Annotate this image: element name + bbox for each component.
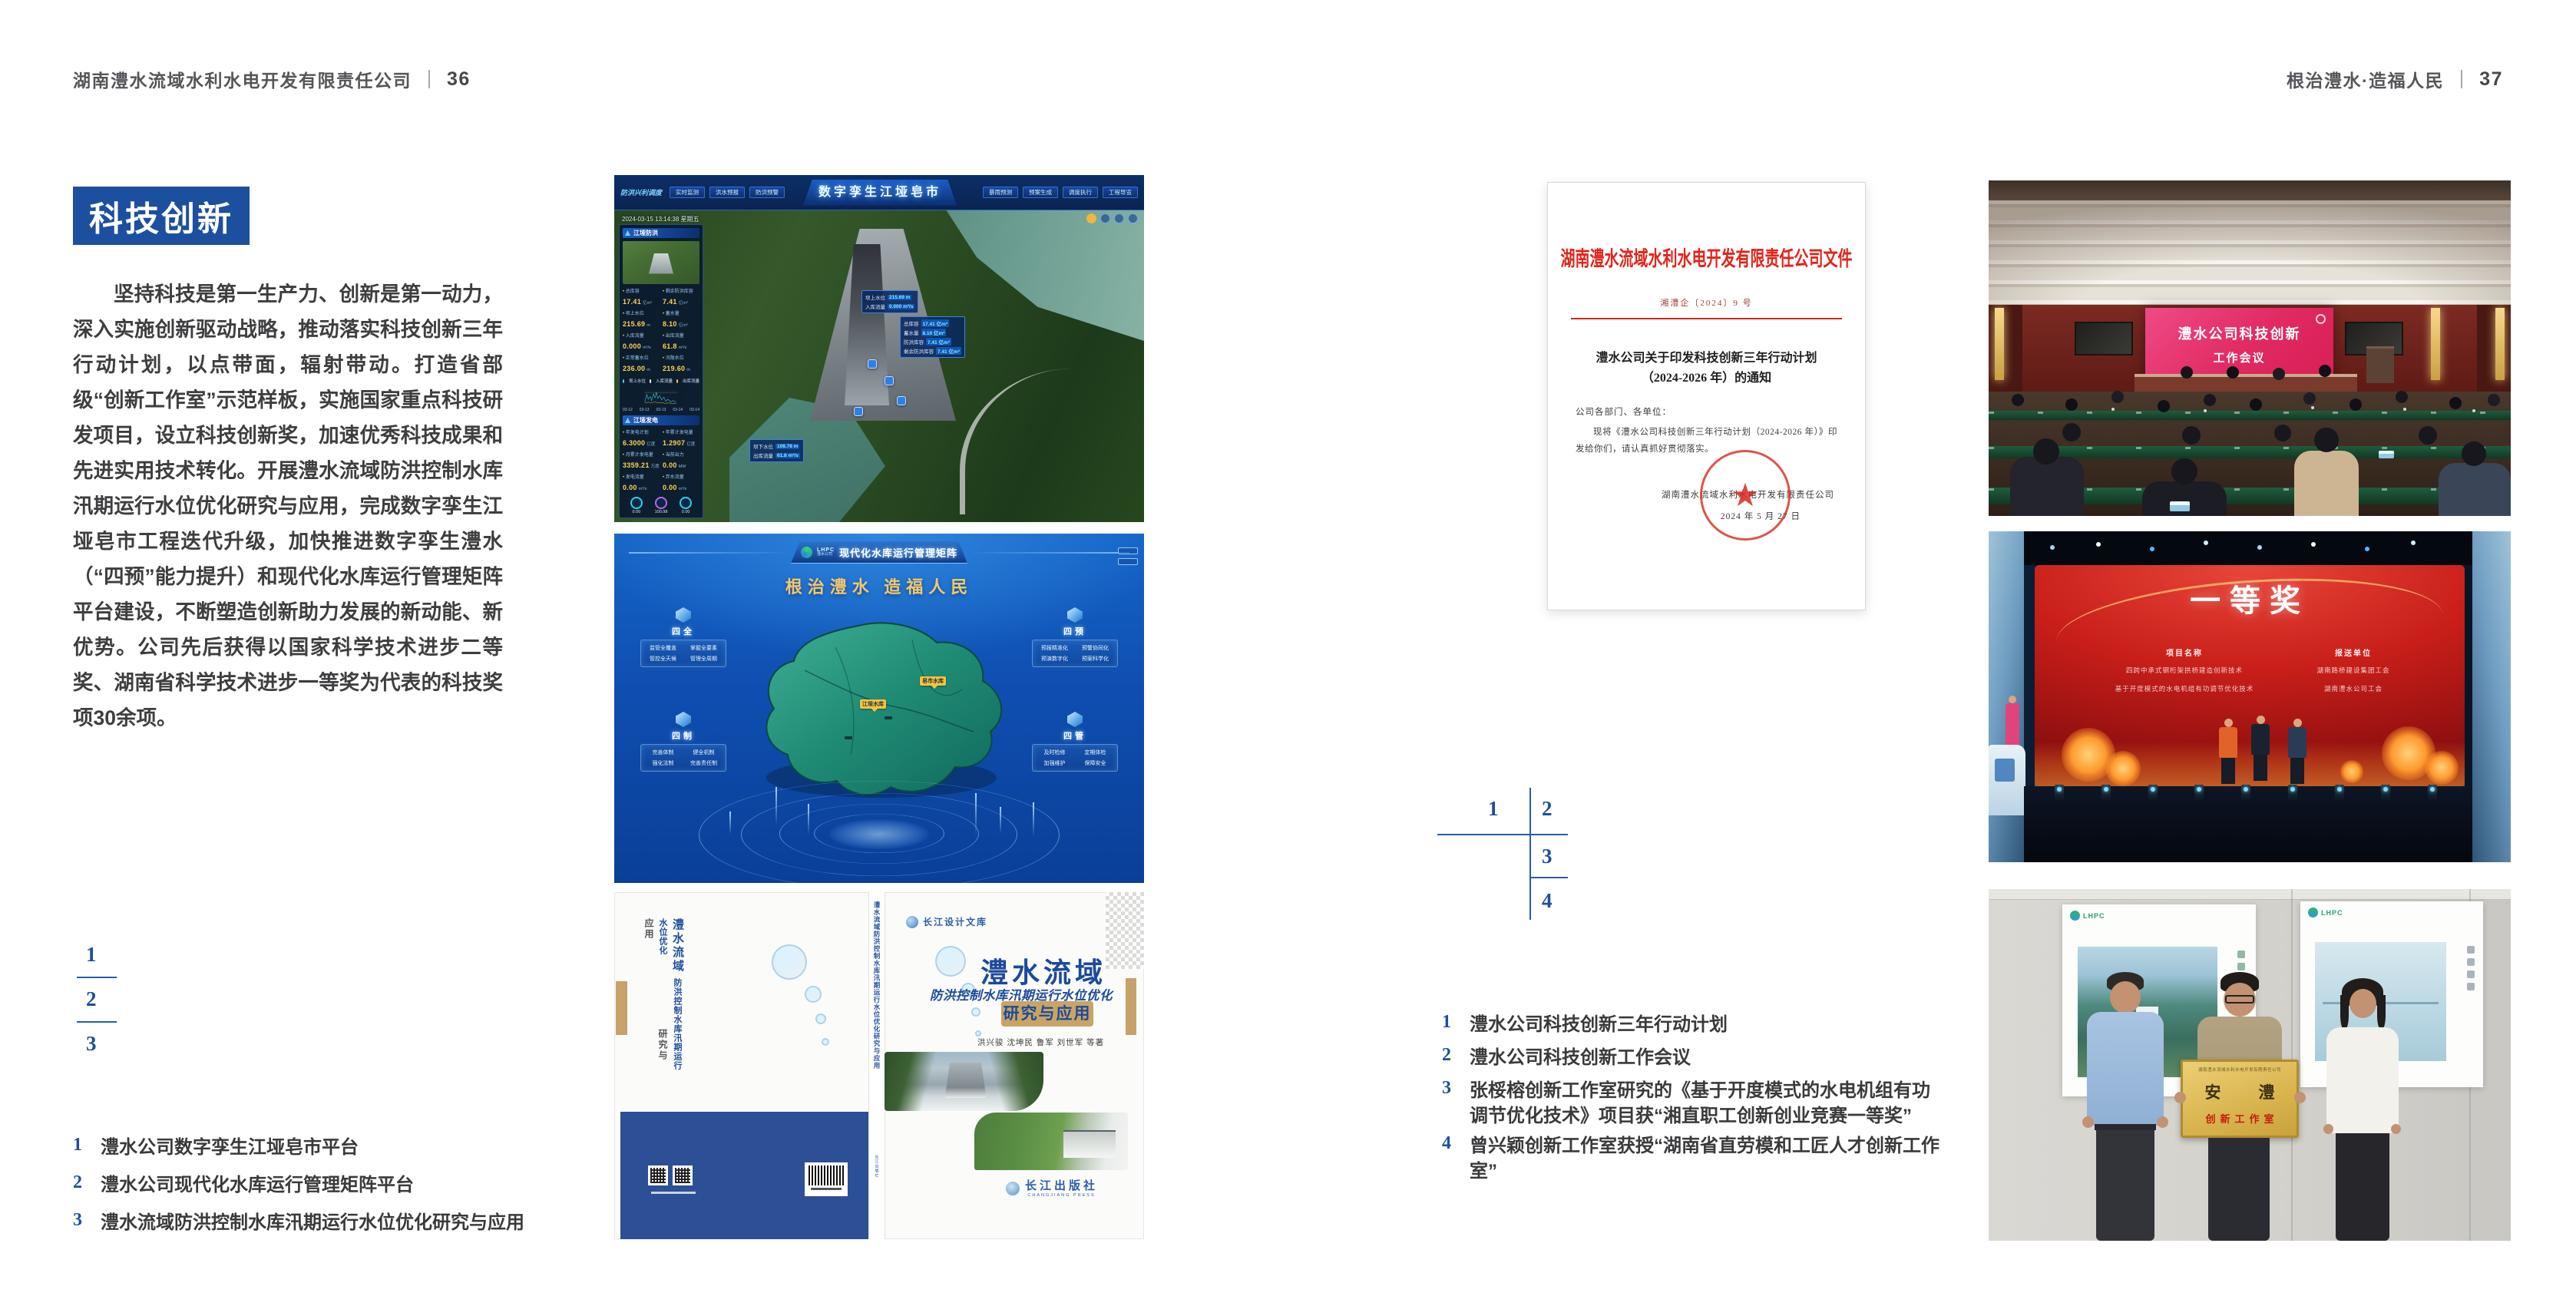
tab-dispatch-execution: 调度执行 [1063,187,1098,198]
ceiling-lights [1989,200,2511,305]
cover-hillside-photo [974,1113,1128,1170]
chart-legend: 坝上水位 入库流量 出库流量 [623,378,699,384]
stat-unit: m³/s [679,487,687,491]
tip-value: 0.000 m³/s [888,304,914,309]
header-divider [2461,70,2462,88]
right-page-header: 根治澧水·造福人民 37 [2287,66,2503,92]
tip-label: 防洪库容 [904,338,924,346]
figure-number-divider [77,1021,117,1023]
radar-ring [699,781,1060,883]
panel-item: 健全机制 [684,749,723,756]
stat-unit: m³/s [643,346,651,350]
tooltip-downstream-level: 坝下水位108.78 m 出库流量61.8 m³/s [749,439,804,462]
stat-label: 出库流量 [663,332,699,339]
bubble-decoration [971,1007,980,1017]
lhpc-logo-icon [801,547,812,558]
stat-unit: MW [679,465,686,469]
host-figure [2004,696,2021,748]
publisher-logo-icon [1006,1182,1020,1195]
cover-dam-photo [885,1052,1043,1111]
logo-text: LHPC [2083,912,2105,920]
publisher-name-en: CHANGJIANG PRESS [1027,1193,1095,1199]
screen-title-line1: 澧水公司科技创新 [2145,323,2333,343]
panel-item: 掌握全要素 [684,644,723,652]
stat-label: 年累计发电量 [663,428,699,435]
presentation-screen: 澧水公司科技创新 工作会议 [2145,308,2333,382]
front-cover-tan-block [1126,978,1136,1035]
dashboard-top-bar: 防洪兴利调度 实时监测 洪水预报 防洪预警 数字孪生江垭皂市 暴雨预测 预案生成… [614,175,1144,210]
column-row: 湖南路桥建设集团工会 [2288,666,2419,675]
caption-right-4: 4 曾兴颖创新工作室获授“湖南省直劳模和工匠人才创新工作室” [1442,1133,1961,1184]
caption-number: 3 [73,1210,87,1231]
audience-head [2182,426,2201,445]
column-header: 报送单位 [2288,646,2419,658]
gauge-icon [630,497,643,509]
light-pillar [1033,802,1034,837]
bubble-decoration [805,986,822,1003]
bubble-decoration [772,944,807,980]
panel-item: 管控全天候 [643,655,683,663]
series-logo-icon [906,916,918,928]
document-salutation: 公司各部门、各单位： [1576,405,1672,418]
x-tick: 03-12 [623,408,633,412]
panel-title: 四预 [1063,625,1086,637]
person-center-man: 湖南澧水流域水利水电开发有限责任公司 安 澧 创新工作室 [2190,969,2290,1241]
publisher-block: 长江出版社 CHANGJIANG PRESS [964,1179,1140,1199]
stat-value: 215.69 [623,320,645,328]
document-red-header: 湖南澧水流域水利水电开发有限责任公司文件 [1548,243,1865,273]
map-pin-icon [868,359,877,369]
document-title-line2: （2024-2026 年）的通知 [1548,367,1865,385]
bubble-decoration [975,1030,981,1037]
logo-text: LHPC [2321,909,2343,917]
ceiling-beam [1989,180,2511,200]
x-tick: 03-14 [673,408,683,412]
access-road [960,369,1121,514]
tab-flood-warning: 防洪预警 [749,187,785,198]
caption-text: 澧水流域防洪控制水库汛期运行水位优化研究与应用 [101,1210,524,1235]
stage-truss [2024,531,2472,565]
light-pillar [1000,807,1001,834]
tab-rain-forecast: 暴雨预测 [983,187,1018,198]
presenter-suit [2251,716,2270,781]
locate-icon [1114,213,1124,223]
dashboard-datetime: 2024-03-15 13:14:38 星期五 [622,215,699,223]
water-bottles [2111,408,2115,411]
water-level-chart [623,387,699,405]
figure-number-divider [77,977,117,978]
figure-number-4: 4 [1542,889,1553,913]
legend-item: 出库流量 [683,378,699,384]
back-cover-title: 澧水流域 防洪控制水库汛期运行水位优化 研究与应用 [642,918,686,1072]
caption-number: 2 [73,1172,87,1193]
turbine-gauges: 0.00 100.98 0.00 [623,497,699,514]
wall-column [1989,305,2022,392]
caption-left-1: 1 澧水公司数字孪生江垭皂市平台 [73,1135,359,1160]
audience-table-row [1989,411,2511,420]
spotlights [2050,545,2055,550]
bubble-decoration [822,1038,829,1046]
bubble-decoration [815,1013,826,1024]
host-podium [1989,745,2025,815]
stat-unit: 亿度 [686,442,695,447]
gold-light-pillar [1995,308,2004,380]
legend-item: 坝上水位 [629,378,646,384]
figure-digital-twin-dashboard: 防洪兴利调度 实时监测 洪水预报 防洪预警 数字孪生江垭皂市 暴雨预测 预案生成… [614,175,1144,522]
tip-value: 17.41 亿m³ [921,319,950,327]
map-pin-icon [854,407,863,416]
stat-label: 弃水流量 [663,473,699,480]
x-tick: 03-13 [656,408,666,412]
stat-value: 0.00 [623,484,637,491]
light-pillar [808,804,809,835]
header-wing [968,552,1129,554]
lhpc-logo-icon [2070,911,2080,921]
audience-figure-beige [2294,451,2359,516]
back-cover-tan-block [616,981,627,1035]
stat-value: 219.60 [663,365,685,372]
figure-number-1: 1 [86,943,97,967]
caption-text: 澧水公司数字孪生江垭皂市平台 [101,1135,359,1160]
panel-title: 四全 [672,625,695,637]
caption-number: 2 [1442,1045,1456,1066]
stat-unit: 亿度 [646,442,655,447]
award-headline: 一等奖 [1989,576,2511,620]
magazine-spread: 湖南澧水流域水利水电开发有限责任公司 36 根治澧水·造福人民 37 科技创新 … [0,0,2576,1306]
dashboard-left-panel: 江垭防洪 总库容17.41亿m³ 剩余防洪库容7.41亿m³ 坝上水位215.6… [619,224,703,518]
panel-item: 预演数字化 [1035,655,1074,663]
tooltip-storage: 总库容17.41 亿m³ 蓄水量8.10 亿m³ 防洪库容7.41 亿m³ 剩余… [900,316,965,358]
light-pillar [775,787,777,825]
tip-label: 坝下水位 [753,442,773,450]
person-left-man [2079,966,2171,1241]
gold-light-pillar [2431,308,2440,380]
audience-figure-blue [2439,463,2511,516]
stat-label: 剩余防洪库容 [663,287,699,294]
caption-right-3: 3 张桵榕创新工作室研究的《基于开度模式的水电机组有功调节优化技术》项目获“湘直… [1442,1078,1946,1129]
awardee-navy [2288,719,2306,784]
tip-value: 61.8 m³/s [775,453,800,458]
map-pin-icon [897,396,906,405]
series-name: 长江设计文库 [923,915,987,928]
right-header-text: 根治澧水·造福人民 [2287,66,2444,92]
caption-text: 曾兴颖创新工作室获授“湖南省直劳模和工匠人才创新工作室” [1470,1133,1961,1184]
tip-label: 剩余防洪库容 [904,347,934,355]
caption-number: 1 [73,1135,87,1156]
tip-label: 入库流量 [865,303,885,310]
figure-group-photo: LHPC LHPC 湖南澧水流域水利水电开发有限责任公司 安 澧 [1989,889,2511,1241]
award-org-column: 报送单位 湖南路桥建设集团工会 湖南澧水公司工会 [2288,646,2419,703]
audience-head [2062,423,2081,441]
document-red-rule [1571,318,1842,319]
tip-label: 蓄水量 [904,329,919,336]
gauge-icon [655,497,667,509]
cover-authors: 洪兴骏 沈坤民 鲁军 刘世军 等著 [974,1037,1108,1048]
checker-decoration [1106,892,1144,969]
caption-left-2: 2 澧水公司现代化水库运行管理矩阵平台 [73,1172,414,1198]
tissue-box [2379,451,2394,458]
audience-head [2419,426,2437,445]
caption-text: 张桵榕创新工作室研究的《基于开度模式的水电机组有功调节优化技术》项目获“湘直职工… [1470,1078,1946,1129]
awardee-orange [2219,719,2237,784]
panel-item: 及时检修 [1035,749,1074,756]
plaque-header: 湖南澧水流域水利水电开发有限责任公司 [2183,1066,2297,1073]
isbn-barcode [805,1162,848,1196]
spine-publisher: 长江出版社 [875,1155,880,1178]
gauge-icon [680,497,692,509]
book-spine: 澧水流域防洪控制水库汛期运行水位优化研究与应用 长江出版社 [868,892,885,1239]
figure-official-document: 湖南澧水流域水利水电开发有限责任公司文件 湘澧企〔2024〕9 号 澧水公司关于… [1547,182,1866,610]
audience-head [2033,438,2059,465]
moving-head-lights [2055,785,2437,800]
stat-label: 坝上水位 [623,309,660,316]
stage-orb-light [2105,751,2141,786]
figure-matrix-platform: LHPC 澧水公司 现代化水库运行管理矩阵 根治澧水 造福人民 皂市水库 江垭水… [614,534,1144,883]
stage-orb-light [2340,760,2363,783]
monitor-icon [1067,712,1083,727]
audience-head [2171,458,2197,484]
audience-head [2462,441,2486,466]
wall-top-strip [1989,889,2511,900]
stat-unit: 亿m³ [679,301,688,306]
tip-value: 7.41 亿m³ [936,347,961,355]
right-page-number: 37 [2479,68,2503,91]
caption-left-3: 3 澧水流域防洪控制水库汛期运行水位优化研究与应用 [73,1210,524,1235]
cube-icon [1067,607,1083,623]
lhpc-logo-icon [2308,908,2318,918]
caption-text: 澧水公司现代化水库运行管理矩阵平台 [101,1172,414,1198]
stat-label: 正常蓄水位 [623,354,660,361]
innovation-studio-plaque: 湖南澧水流域水利水电开发有限责任公司 安 澧 创新工作室 [2181,1060,2299,1138]
document-title-line1: 澧水公司关于印发科技创新三年行动计划 [1548,347,1865,365]
panel-item: 预警协同化 [1076,644,1115,652]
column-row: 四跨中承式钢桁架拱桥建造创新技术 [2104,666,2265,675]
gauge-value: 0.00 [630,510,643,514]
tab-realtime-monitor: 实时监测 [670,187,705,198]
body-paragraph: 坚持科技是第一生产力、创新是第一动力，深入实施创新驱动战略，推动落实科技创新三年… [73,276,503,736]
stat-unit: 亿m³ [679,323,688,328]
flood-stats: 总库容17.41亿m³ 剩余防洪库容7.41亿m³ 坝上水位215.69m 蓄水… [623,287,699,375]
figure-number-2: 2 [1542,797,1553,821]
column-row: 基于开度模式的水电机组有功调节优化技术 [2104,684,2265,693]
back-title-region: 澧水流域 [671,918,684,974]
figure-grid-vline [1529,788,1531,920]
matrix-slogan: 根治澧水 造福人民 [785,574,974,598]
stat-unit: m³/s [639,487,647,491]
audience-heads-row1 [2012,394,2024,406]
stage-orb-light [2425,751,2459,785]
stat-label: 当前出力 [663,451,699,458]
stat-label: 汛限水位 [663,354,699,361]
stat-unit: m [646,323,650,328]
panel-item: 完善责任制 [684,759,723,767]
poster-logo: LHPC [2070,911,2105,921]
stat-unit: m [646,368,650,372]
stat-value: 1.2907 [663,439,685,447]
cover-title-tail: 研究与应用 [1001,1001,1093,1027]
plaque-title: 安 澧 [2183,1080,2297,1103]
stat-value: 0.00 [663,461,677,469]
header-button [1118,547,1138,554]
panel-item: 预报精准化 [1035,644,1074,652]
stat-value: 61.8 [663,342,677,350]
gauge-value: 0.00 [680,510,692,514]
official-seal [1700,450,1791,541]
figure-number-1: 1 [1488,797,1499,821]
power-panel-title: 江垭发电 [623,415,699,425]
panel-siquan: 四全 监管全覆盖 掌握全要素 管控全天候 管理全周期 [640,607,726,667]
small-station-marker [845,736,852,739]
stat-value: 17.41 [623,298,641,306]
left-header-text: 湖南澧水流域水利水电开发有限责任公司 [73,66,412,92]
award-project-column: 项目名称 四跨中承式钢桁架拱桥建造创新技术 基于开度模式的水电机组有功调节优化技… [2104,646,2265,703]
figure-number-3: 3 [86,1032,97,1056]
marker-zaoshi-reservoir: 皂市水库 [920,676,946,686]
tip-value: 7.41 亿m³ [926,338,951,346]
screen-title-line2: 工作会议 [2145,349,2333,365]
small-station-marker [885,716,892,719]
qr-code [673,1165,693,1185]
tooltip-upstream-level: 坝上水位215.69 m 入库流量0.000 m³/s [861,290,918,313]
stat-label: 月累计发电量 [623,451,660,458]
tab-plan-generation: 预案生成 [1023,187,1058,198]
poster-calligraphy [2459,946,2482,1057]
dam-thumbnail-photo [623,241,699,284]
caption-text: 澧水公司科技创新工作会议 [1470,1045,1691,1070]
dashboard-corner-label: 防洪兴利调度 [620,187,662,197]
caption-number: 3 [1442,1078,1456,1099]
tip-value: 215.69 m [888,295,911,300]
stat-value: 3359.21 [623,461,650,469]
layers-icon [1100,213,1110,223]
left-page-header: 湖南澧水流域水利水电开发有限责任公司 36 [73,66,471,92]
lectern [2366,346,2394,383]
figure-meeting-photo: 澧水公司科技创新 工作会议 [1989,180,2511,516]
stat-value: 236.00 [623,365,645,372]
wall-column [2477,305,2511,392]
matrix-header: LHPC 澧水公司 现代化水库运行管理矩阵 [791,541,967,564]
publisher-name: 长江出版社 [1025,1179,1098,1193]
dashboard-toolbar-icons [1086,213,1138,223]
map-pin-icon [885,376,894,385]
x-tick: 03-14 [689,408,699,412]
document-number: 湘澧企〔2024〕9 号 [1548,296,1865,309]
chart-x-ticks: 03-12 03-13 03-13 03-14 03-14 [623,408,699,412]
tissue-box [2170,501,2190,511]
stat-unit: m³/s [679,346,687,350]
stat-value: 6.3000 [623,439,645,447]
figure-number-3: 3 [1542,845,1553,868]
stat-value: 8.10 [663,320,677,328]
tip-label: 总库容 [904,319,919,327]
stat-value: 0.000 [623,342,641,350]
poster-logo: LHPC [2308,908,2343,918]
audience-figure [2010,457,2084,516]
panel-item: 管理全周期 [684,655,723,663]
stat-unit: m [686,368,690,372]
dashboard-title: 数字孪生江垭皂市 [803,180,957,206]
panel-title: 四管 [1063,729,1086,742]
panel-item: 监管全覆盖 [643,644,683,652]
tip-value: 8.10 亿m³ [921,329,947,336]
audience-head [2274,425,2291,441]
section-title: 科技创新 [73,187,250,245]
tab-project-tour: 工程导览 [1103,187,1138,198]
stat-label: 入库流量 [623,332,660,339]
light-pillar [975,793,977,835]
qr-caption-line [651,1192,696,1194]
stat-unit: 亿m³ [643,301,652,306]
gauge-value: 100.98 [655,510,668,514]
legend-item: 入库流量 [656,378,673,384]
stat-unit: 万度 [651,465,660,469]
panel-item: 保障安全 [1076,759,1115,767]
stat-value: 0.00 [663,484,677,491]
panel-siguan: 四管 及时检修 定期体检 加强维护 保障安全 [1032,712,1118,772]
left-page-number: 36 [447,68,471,91]
caption-right-2: 2 澧水公司科技创新工作会议 [1442,1045,1691,1070]
cube-icon [676,607,691,623]
figure-grid-hline [1529,877,1568,878]
panel-item: 完善体制 [643,749,683,756]
tip-value: 108.78 m [775,444,799,449]
building-icon [676,712,691,727]
power-stats: 年发电计划6.3000亿度 年累计发电量1.2907亿度 月累计发电量3359.… [623,428,699,494]
user-icon [1086,213,1096,223]
panel-sizhi: 四制 完善体制 健全机制 强化法制 完善责任制 [640,712,726,772]
qr-code [648,1165,668,1185]
spine-title: 澧水流域防洪控制水库汛期运行水位优化研究与应用 [872,901,881,1124]
caption-right-1: 1 澧水公司科技创新三年行动计划 [1442,1012,1728,1037]
panel-item: 预案科学化 [1076,655,1115,663]
figure-number-2: 2 [86,987,97,1011]
marker-jiangya-reservoir: 江垭水库 [860,699,886,709]
head-table-people [2181,366,2193,379]
panel-title: 四制 [672,729,695,742]
settings-icon [1128,213,1138,223]
stat-label: 总库容 [623,287,660,294]
series-logo-row: 长江设计文库 [906,915,987,928]
figure-book-cover: 澧水流域 防洪控制水库汛期运行水位优化 研究与应用 澧水流域防洪控制水库汛期运行… [614,892,1144,1239]
column-header: 项目名称 [2104,646,2265,658]
watershed-terrain-map [743,617,1020,805]
matrix-title: 现代化水库运行管理矩阵 [839,545,957,560]
caption-number: 4 [1442,1133,1456,1154]
document-body: 现将《澧水公司科技创新三年行动计划（2024-2026 年）》印发给你们，请认真… [1576,424,1837,458]
header-button [1118,558,1138,565]
tab-flood-forecast: 洪水预报 [709,187,745,198]
stat-label: 蓄水量 [663,309,699,316]
header-divider [428,70,430,88]
x-tick: 03-13 [640,408,650,412]
tip-label: 坝上水位 [865,293,885,301]
gold-light-pillar [2495,308,2505,380]
panel-item: 强化法制 [643,759,683,767]
panel-item: 定期体检 [1076,749,1115,756]
tip-label: 出库流量 [753,451,773,459]
flood-panel-title: 江垭防洪 [623,228,699,238]
panel-siyu: 四预 预报精准化 预警协同化 预演数字化 预案科学化 [1032,607,1118,667]
stat-label: 年发电计划 [623,428,660,435]
figure-award-photo: 一等奖 项目名称 四跨中承式钢桁架拱桥建造创新技术 基于开度模式的水电机组有功调… [1989,531,2511,862]
figure-grid-hline [1437,834,1568,835]
logo-subtext: 澧水公司 [817,553,835,557]
stat-label: 发电流量 [623,473,660,480]
person-right-woman [2320,978,2405,1241]
caption-number: 1 [1442,1012,1456,1033]
plaque-subtitle: 创新工作室 [2183,1111,2297,1126]
caption-text: 澧水公司科技创新三年行动计划 [1470,1012,1728,1037]
